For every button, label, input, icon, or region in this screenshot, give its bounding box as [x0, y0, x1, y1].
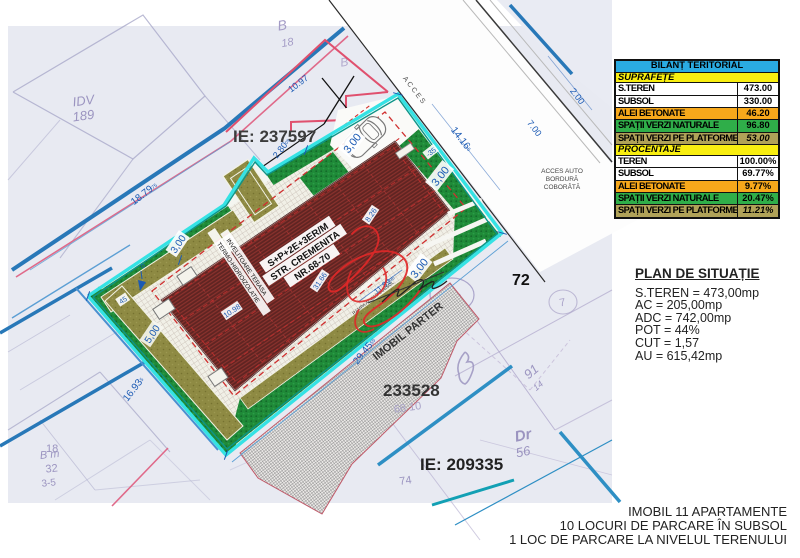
- svg-text:COBORÂTĂ: COBORÂTĂ: [544, 182, 581, 191]
- svg-text:74: 74: [399, 474, 413, 488]
- svg-text:ACCES AUTO: ACCES AUTO: [541, 168, 583, 175]
- svg-text:18: 18: [46, 443, 58, 455]
- svg-text:32: 32: [45, 462, 58, 475]
- svg-text:3-5: 3-5: [41, 477, 57, 489]
- svg-text:o: o: [141, 263, 145, 270]
- svg-text:72: 72: [512, 272, 530, 289]
- svg-text:BORDURĂ: BORDURĂ: [546, 174, 579, 183]
- svg-text:IE: 209335: IE: 209335: [420, 455, 503, 474]
- svg-text:233528: 233528: [383, 381, 440, 400]
- svg-text:B: B: [276, 16, 288, 33]
- svg-text:IE: 237597: IE: 237597: [233, 127, 316, 146]
- svg-text:189: 189: [72, 107, 96, 125]
